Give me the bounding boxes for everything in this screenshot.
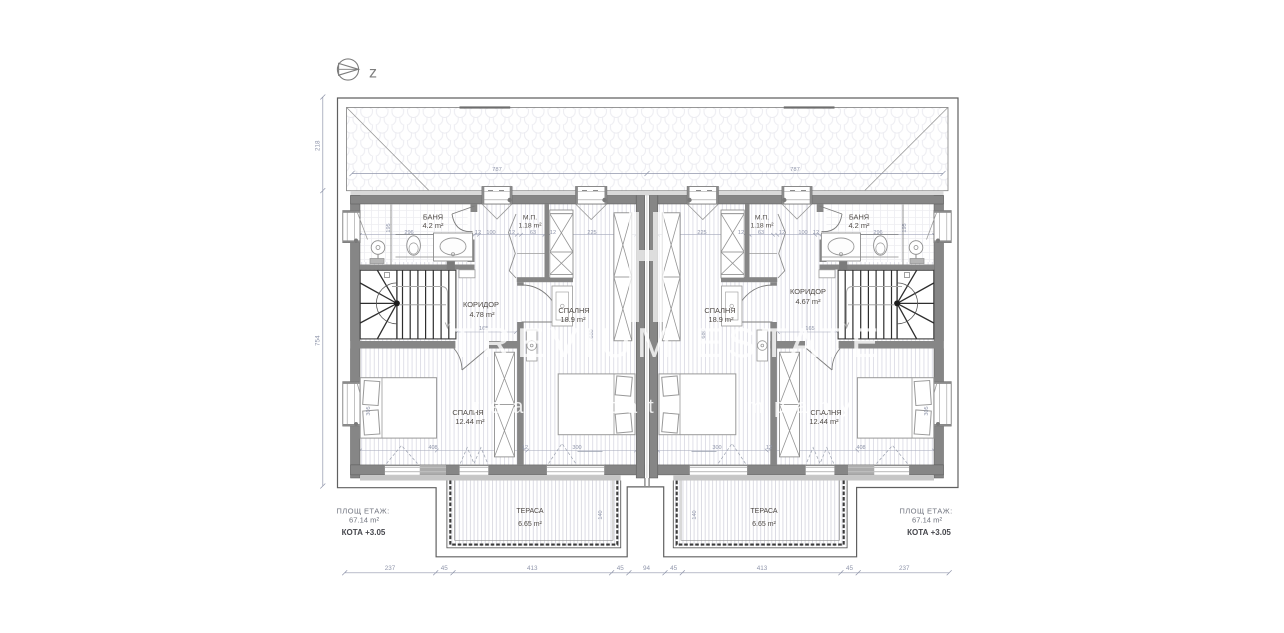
svg-text:real estate company: real estate company: [472, 396, 861, 418]
svg-text:45: 45: [617, 565, 625, 572]
svg-text:4.78 m²: 4.78 m²: [469, 310, 495, 319]
svg-text:787: 787: [492, 167, 502, 173]
svg-text:12.44 m²: 12.44 m²: [809, 417, 839, 426]
svg-text:300: 300: [572, 445, 581, 451]
svg-text:63: 63: [758, 230, 764, 236]
svg-text:4.2 m²: 4.2 m²: [849, 221, 870, 230]
svg-text:СПАЛНЯ: СПАЛНЯ: [558, 306, 589, 315]
svg-text:305: 305: [366, 406, 372, 415]
svg-text:63: 63: [530, 230, 536, 236]
svg-text:4.2 m²: 4.2 m²: [423, 221, 444, 230]
svg-text:413: 413: [757, 565, 768, 572]
svg-text:12: 12: [738, 230, 744, 236]
svg-text:218: 218: [315, 140, 322, 151]
svg-text:12: 12: [522, 445, 528, 451]
svg-text:КОРИДОР: КОРИДОР: [463, 300, 499, 309]
svg-text:225: 225: [587, 230, 596, 236]
svg-text:6.65 m²: 6.65 m²: [518, 521, 542, 528]
svg-text:КОРИДОР: КОРИДОР: [790, 287, 826, 296]
svg-text:СПАЛНЯ: СПАЛНЯ: [704, 306, 735, 315]
svg-text:z: z: [369, 65, 377, 82]
svg-text:1.18 m²: 1.18 m²: [750, 223, 774, 230]
svg-text:195: 195: [386, 223, 392, 232]
svg-text:ТЕРАСА: ТЕРАСА: [516, 508, 544, 515]
svg-text:100: 100: [486, 230, 495, 236]
svg-text:М.П.: М.П.: [755, 215, 769, 222]
svg-text:195: 195: [902, 223, 908, 232]
svg-text:ПЛОЩ ЕТАЖ:: ПЛОЩ ЕТАЖ:: [336, 507, 389, 516]
svg-text:305: 305: [924, 406, 930, 415]
svg-text:12: 12: [475, 230, 481, 236]
svg-text:237: 237: [899, 565, 910, 572]
svg-text:4.67 m²: 4.67 m²: [795, 297, 821, 306]
svg-text:296: 296: [873, 230, 882, 236]
svg-text:ТЕРАСА: ТЕРАСА: [750, 508, 778, 515]
svg-text:12: 12: [766, 445, 772, 451]
svg-text:140: 140: [598, 510, 604, 519]
svg-text:296: 296: [404, 230, 413, 236]
svg-text:237: 237: [385, 565, 396, 572]
svg-text:67.14 m²: 67.14 m²: [349, 516, 379, 525]
svg-text:787: 787: [790, 167, 800, 173]
svg-text:754: 754: [315, 335, 322, 346]
svg-text:12: 12: [550, 230, 556, 236]
svg-text:6.65 m²: 6.65 m²: [752, 521, 776, 528]
svg-text:КОТА +3.05: КОТА +3.05: [342, 528, 386, 537]
svg-text:12.44 m²: 12.44 m²: [455, 417, 485, 426]
svg-text:TREVIUM ESTATE: TREVIUM ESTATE: [450, 319, 885, 366]
svg-text:300: 300: [712, 445, 721, 451]
svg-text:45: 45: [441, 565, 449, 572]
svg-text:1.18 m²: 1.18 m²: [518, 223, 542, 230]
svg-text:140: 140: [692, 510, 698, 519]
svg-text:М.П.: М.П.: [523, 215, 537, 222]
svg-text:413: 413: [527, 565, 538, 572]
svg-text:12: 12: [813, 230, 819, 236]
svg-text:КОТА +3.05: КОТА +3.05: [907, 528, 951, 537]
svg-text:45: 45: [670, 565, 678, 572]
svg-text:408: 408: [856, 445, 865, 451]
svg-text:ПЛОЩ ЕТАЖ:: ПЛОЩ ЕТАЖ:: [899, 507, 952, 516]
svg-text:12: 12: [509, 230, 515, 236]
svg-text:408: 408: [428, 445, 437, 451]
svg-text:12: 12: [779, 230, 785, 236]
svg-text:94: 94: [643, 565, 651, 572]
svg-text:67.14 m²: 67.14 m²: [912, 516, 942, 525]
svg-text:45: 45: [846, 565, 854, 572]
svg-text:225: 225: [697, 230, 706, 236]
svg-text:100: 100: [798, 230, 807, 236]
